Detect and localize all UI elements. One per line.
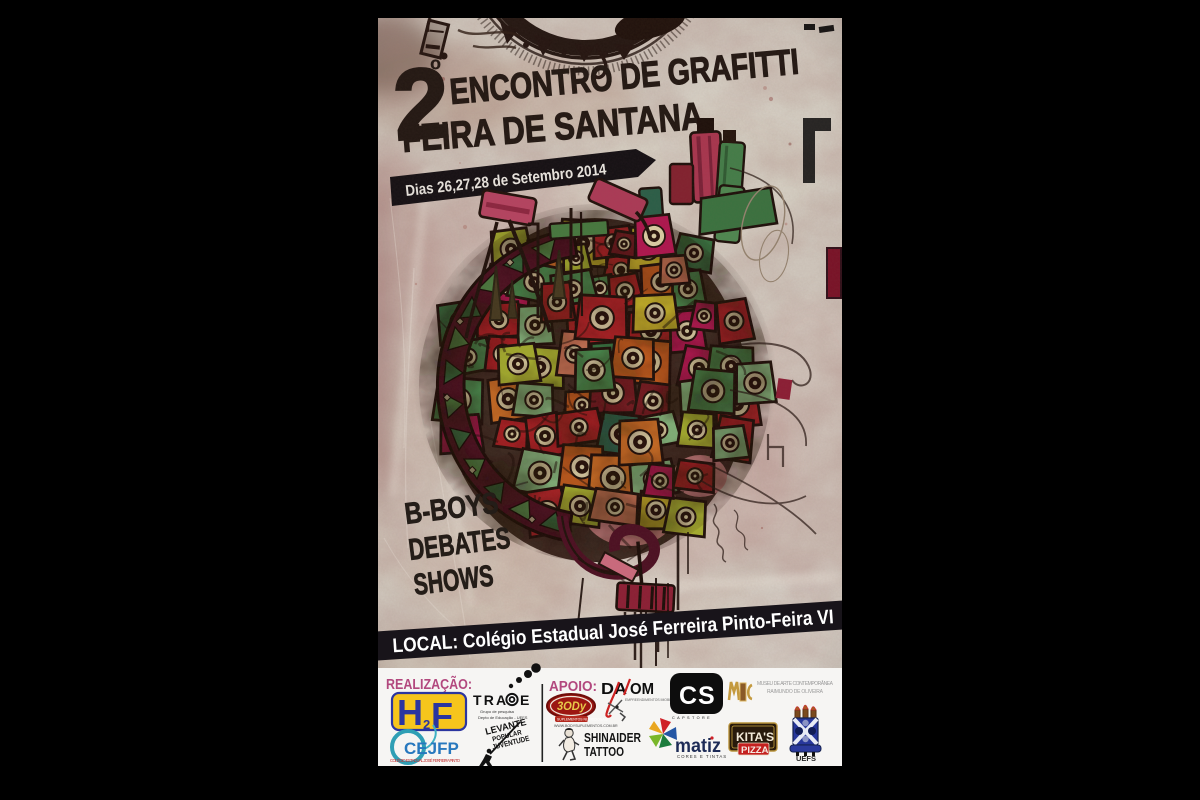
svg-text:UEFS: UEFS (796, 754, 816, 763)
svg-text:REALIZAÇÃO:: REALIZAÇÃO: (386, 675, 472, 693)
svg-text:SHINAIDER: SHINAIDER (584, 730, 641, 745)
svg-text:COLÉGIO ESTADUAL JOSÉ FERREIRA: COLÉGIO ESTADUAL JOSÉ FERREIRA PINTO (390, 758, 461, 763)
svg-text:CORES E TINTAS: CORES E TINTAS (677, 754, 727, 759)
svg-text:APOIO:: APOIO: (549, 679, 597, 695)
svg-text:CEJFP: CEJFP (404, 739, 459, 758)
svg-text:CS: CS (679, 682, 716, 710)
svg-text:KITA'S: KITA'S (736, 730, 774, 744)
svg-text:3ODy: 3ODy (557, 701, 587, 713)
svg-text:TRA: TRA (473, 692, 508, 708)
svg-text:Grupo de pesquisa: Grupo de pesquisa (480, 709, 515, 714)
svg-text:SUPLEMENTOS NUTRICIONAIS: SUPLEMENTOS NUTRICIONAIS (557, 718, 609, 722)
svg-text:CAPSTORE: CAPSTORE (672, 716, 712, 720)
svg-text:2: 2 (423, 717, 430, 732)
svg-text:MUSEU DE ARTE CONTEMPORÂNEA: MUSEU DE ARTE CONTEMPORÂNEA (757, 680, 834, 687)
svg-text:E: E (520, 692, 529, 708)
svg-text:TATTOO: TATTOO (584, 744, 624, 759)
svg-text:PIZZA: PIZZA (741, 745, 769, 756)
svg-text:H: H (397, 692, 423, 733)
svg-text:OM: OM (630, 681, 654, 698)
svg-text:WWW.BODYSUPLEMENTOS.COM.BR: WWW.BODYSUPLEMENTOS.COM.BR (554, 724, 618, 728)
svg-text:RAIMUNDO DE OLIVEIRA: RAIMUNDO DE OLIVEIRA (767, 689, 824, 695)
